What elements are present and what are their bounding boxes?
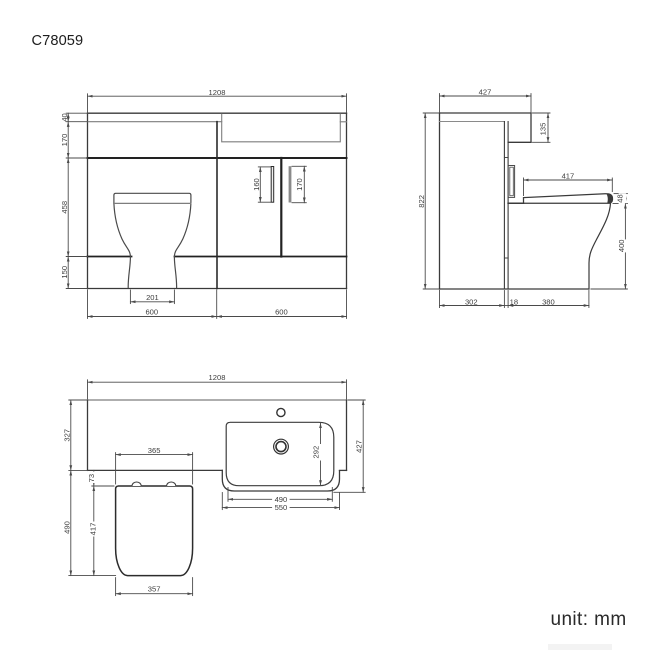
svg-text:48: 48 bbox=[615, 194, 624, 202]
svg-text:302: 302 bbox=[465, 297, 478, 306]
svg-text:327: 327 bbox=[62, 429, 71, 442]
svg-text:600: 600 bbox=[145, 308, 158, 317]
svg-text:170: 170 bbox=[295, 178, 304, 191]
svg-text:357: 357 bbox=[148, 584, 161, 593]
svg-text:380: 380 bbox=[542, 297, 555, 306]
svg-text:73: 73 bbox=[87, 474, 96, 482]
svg-text:427: 427 bbox=[354, 440, 363, 453]
svg-text:292: 292 bbox=[312, 446, 321, 459]
svg-text:1208: 1208 bbox=[209, 88, 226, 97]
svg-text:822: 822 bbox=[417, 195, 426, 208]
svg-text:1208: 1208 bbox=[209, 373, 226, 382]
svg-text:458: 458 bbox=[60, 201, 69, 214]
svg-text:40: 40 bbox=[60, 113, 69, 121]
svg-text:201: 201 bbox=[146, 293, 159, 302]
svg-text:427: 427 bbox=[479, 88, 492, 97]
svg-text:150: 150 bbox=[60, 266, 69, 279]
svg-text:600: 600 bbox=[275, 308, 288, 317]
svg-text:550: 550 bbox=[275, 503, 288, 512]
svg-text:490: 490 bbox=[62, 521, 71, 534]
svg-text:417: 417 bbox=[89, 523, 98, 536]
svg-text:160: 160 bbox=[252, 178, 261, 191]
svg-text:18: 18 bbox=[510, 297, 518, 306]
svg-text:170: 170 bbox=[60, 134, 69, 147]
svg-text:400: 400 bbox=[617, 239, 626, 252]
svg-text:417: 417 bbox=[562, 171, 575, 180]
svg-text:135: 135 bbox=[538, 123, 547, 136]
svg-text:365: 365 bbox=[148, 446, 161, 455]
